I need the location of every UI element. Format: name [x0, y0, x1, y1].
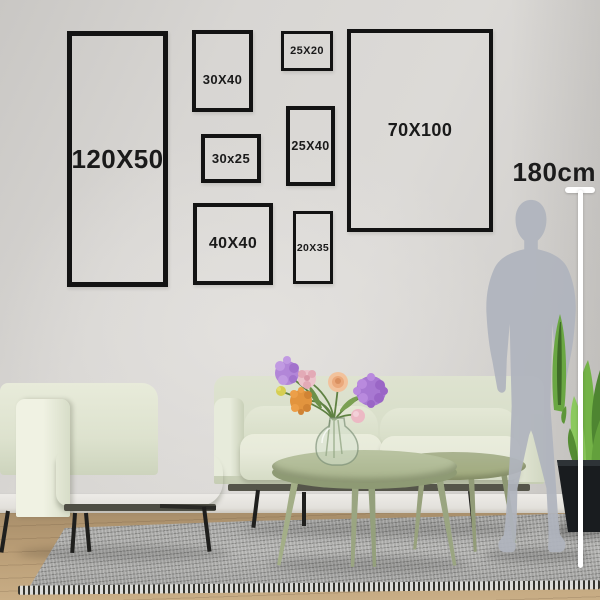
frame-size-label: 70X100	[388, 120, 452, 141]
frame-size-label: 30X40	[203, 72, 243, 87]
flower-pink-bud	[351, 409, 365, 423]
flower-yellow	[276, 386, 286, 396]
frame-size-label: 30x25	[212, 151, 250, 166]
height-label: 180cm	[504, 157, 596, 188]
sofa-leg	[302, 492, 306, 526]
frame-25x40: 25X40	[286, 106, 335, 186]
frame-70x100: 70X100	[347, 29, 493, 232]
living-room-frame-size-guide: 180cm 120X50 30X40 25X20 30x25 25X40 70X…	[0, 0, 600, 600]
frame-size-label: 20X35	[297, 242, 329, 254]
frame-25x20: 25X20	[281, 31, 333, 71]
frame-30x25: 30x25	[201, 134, 261, 183]
frame-size-label: 40X40	[209, 235, 257, 253]
measuring-stick	[578, 190, 583, 568]
frame-20x35: 20X35	[293, 211, 333, 284]
potted-plant	[540, 300, 600, 540]
frame-size-label: 25X20	[290, 45, 324, 57]
flower-purple-left	[275, 356, 299, 385]
frame-size-label: 120X50	[71, 144, 163, 175]
frame-size-label: 25X40	[291, 139, 329, 153]
flower-purple-right	[353, 373, 388, 408]
armchair-shadow	[18, 545, 230, 561]
frame-40x40: 40X40	[193, 203, 273, 285]
frame-120x50: 120X50	[67, 31, 168, 287]
armchair-seat-cushion	[56, 452, 223, 506]
flower-vase	[250, 348, 400, 472]
table-shadow	[268, 556, 468, 573]
flower-orange	[290, 387, 312, 415]
frame-30x40: 30X40	[192, 30, 253, 112]
flower-peach	[328, 372, 348, 392]
